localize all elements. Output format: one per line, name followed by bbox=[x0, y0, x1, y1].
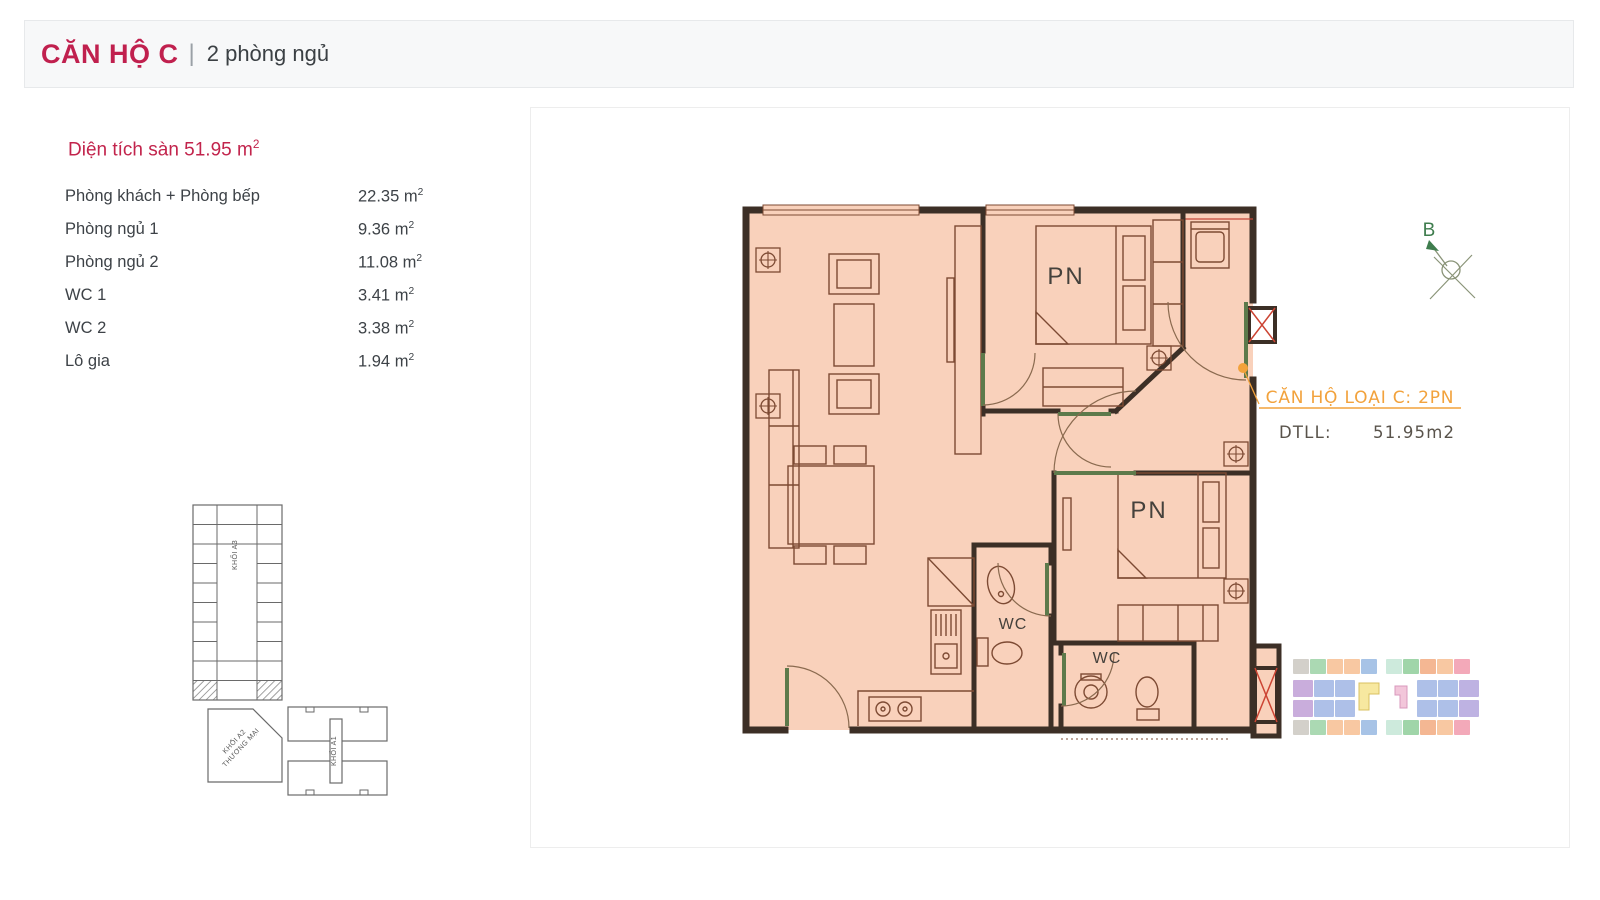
wc2-label: WC bbox=[1093, 650, 1122, 667]
area-row-label: Lô gia bbox=[65, 352, 110, 370]
adjacent-unit-shape bbox=[1395, 686, 1407, 708]
area-row-value: 9.36 m2 bbox=[358, 220, 414, 240]
area-row-label: Phòng ngủ 1 bbox=[65, 220, 159, 238]
minimap-unit-cell bbox=[1403, 720, 1419, 735]
area-row-label: WC 1 bbox=[65, 286, 106, 304]
floor-minimap bbox=[1293, 659, 1475, 737]
floorplan-panel: PN PN WC WC CĂN HỘ LOẠI C: 2PN DTLL: 51.… bbox=[530, 107, 1570, 848]
minimap-unit-cell bbox=[1327, 720, 1343, 735]
apartment-detail-page: CĂN HỘ C | 2 phòng ngủ Diện tích sàn 51.… bbox=[0, 0, 1600, 900]
floor-area-title: Diện tích sàn 51.95 m2 bbox=[65, 138, 465, 161]
page-subtitle: 2 phòng ngủ bbox=[207, 41, 329, 67]
page-title: CĂN HỘ C bbox=[41, 39, 179, 70]
minimap-unit-cell bbox=[1335, 700, 1355, 717]
minimap-unit-cell bbox=[1310, 720, 1326, 735]
area-row: WC 23.38 m2 bbox=[65, 319, 465, 352]
minimap-unit-cell bbox=[1437, 720, 1453, 735]
bedroom1-label: PN bbox=[1047, 263, 1084, 290]
area-row: Phòng khách + Phòng bếp22.35 m2 bbox=[65, 187, 465, 220]
highlighted-unit-shape bbox=[1359, 683, 1379, 710]
minimap-unit-cell bbox=[1454, 659, 1470, 674]
block-a1-building: KHỐI A1 bbox=[288, 707, 387, 795]
minimap-unit-cell bbox=[1438, 700, 1458, 717]
minimap-unit-cell bbox=[1454, 720, 1470, 735]
minimap-unit-cell bbox=[1314, 700, 1334, 717]
minimap-unit-cell bbox=[1344, 720, 1360, 735]
area-row-label: Phòng ngủ 2 bbox=[65, 253, 159, 271]
annotation-area-value: 51.95m2 bbox=[1373, 423, 1455, 442]
minimap-unit-cell bbox=[1293, 659, 1309, 674]
minimap-unit-cell bbox=[1386, 659, 1402, 674]
minimap-unit-cell bbox=[1335, 680, 1355, 697]
area-row-label: Phòng khách + Phòng bếp bbox=[65, 187, 260, 205]
area-row-value: 3.38 m2 bbox=[358, 319, 414, 339]
page-header: CĂN HỘ C | 2 phòng ngủ bbox=[24, 20, 1574, 88]
minimap-unit-cell bbox=[1438, 680, 1458, 697]
area-row: Lô gia1.94 m2 bbox=[65, 352, 465, 385]
unit-annotation: CĂN HỘ LOẠI C: 2PN DTLL: 51.95m2 bbox=[1238, 363, 1461, 442]
minimap-unit-cell bbox=[1437, 659, 1453, 674]
minimap-unit-cell bbox=[1293, 680, 1313, 697]
area-row: Phòng ngủ 19.36 m2 bbox=[65, 220, 465, 253]
area-row-value: 22.35 m2 bbox=[358, 187, 423, 207]
minimap-highlight-units bbox=[1357, 682, 1415, 714]
block-a3-tower: KHỐI A3 bbox=[193, 505, 282, 700]
floor-area-text: Diện tích sàn 51.95 m bbox=[68, 139, 253, 160]
site-plan-overview: KHỐI A3 KHỐI A2 THƯƠNG MẠI KHỐI A1 bbox=[180, 485, 400, 805]
minimap-unit-cell bbox=[1293, 720, 1309, 735]
minimap-unit-cell bbox=[1417, 680, 1437, 697]
sup-unit: 2 bbox=[253, 138, 260, 151]
minimap-unit-cell bbox=[1459, 680, 1479, 697]
area-row: WC 13.41 m2 bbox=[65, 286, 465, 319]
area-row: Phòng ngủ 211.08 m2 bbox=[65, 253, 465, 286]
minimap-unit-cell bbox=[1361, 720, 1377, 735]
minimap-unit-cell bbox=[1310, 659, 1326, 674]
minimap-unit-cell bbox=[1420, 659, 1436, 674]
area-row-label: WC 2 bbox=[65, 319, 106, 337]
minimap-unit-cell bbox=[1327, 659, 1343, 674]
annotation-title: CĂN HỘ LOẠI C: 2PN bbox=[1266, 386, 1455, 408]
minimap-unit-cell bbox=[1314, 680, 1334, 697]
area-summary: Diện tích sàn 51.95 m2 Phòng khách + Phò… bbox=[65, 138, 465, 385]
bedroom2-label: PN bbox=[1130, 497, 1167, 524]
compass-letter: B bbox=[1423, 220, 1436, 241]
block-a2-commercial: KHỐI A2 THƯƠNG MẠI bbox=[208, 709, 282, 782]
area-row-value: 3.41 m2 bbox=[358, 286, 414, 306]
minimap-unit-cell bbox=[1361, 659, 1377, 674]
minimap-unit-cell bbox=[1403, 659, 1419, 674]
minimap-unit-cell bbox=[1459, 700, 1479, 717]
wc1-label: WC bbox=[999, 616, 1028, 633]
annotation-area-label: DTLL: bbox=[1279, 423, 1332, 442]
area-row-value: 1.94 m2 bbox=[358, 352, 414, 372]
minimap-unit-cell bbox=[1344, 659, 1360, 674]
title-divider: | bbox=[189, 40, 195, 68]
minimap-unit-cell bbox=[1417, 700, 1437, 717]
compass-icon: B bbox=[1423, 220, 1475, 299]
minimap-unit-cell bbox=[1386, 720, 1402, 735]
minimap-unit-cell bbox=[1293, 700, 1313, 717]
area-row-value: 11.08 m2 bbox=[358, 253, 422, 273]
minimap-unit-cell bbox=[1420, 720, 1436, 735]
